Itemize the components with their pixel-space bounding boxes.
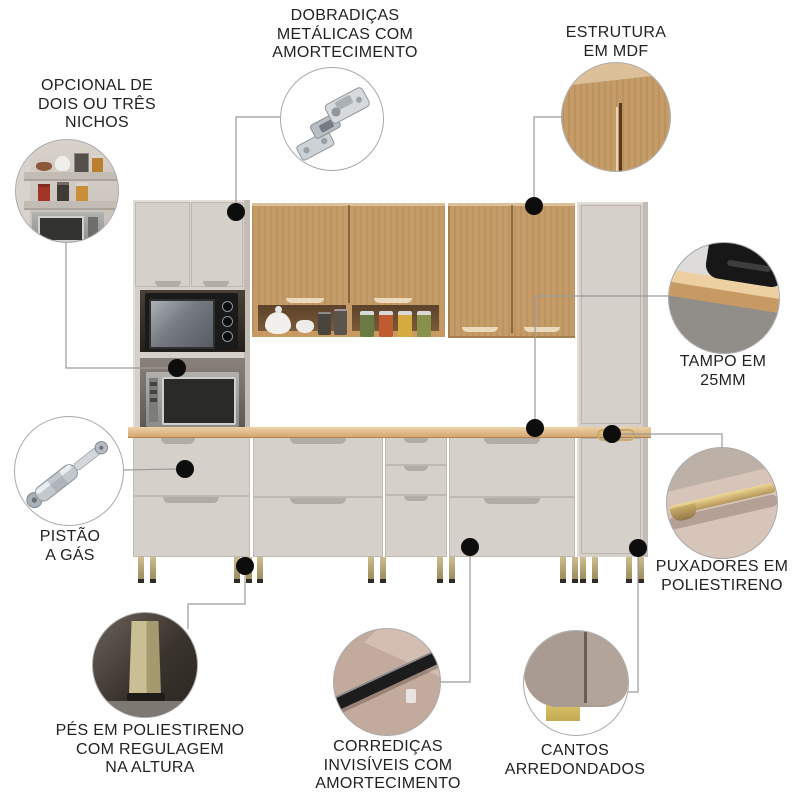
foot-base-cap (127, 693, 165, 701)
puxadores-photo-circle (666, 447, 778, 559)
callout-label-puxadores: PUXADORES EM POLIESTIRENO (622, 558, 800, 595)
callout-label-tampo: TAMPO EM 25MM (643, 353, 800, 390)
gas-piston-icon (15, 417, 123, 525)
cantos-photo-circle (523, 630, 629, 736)
pistao-photo-circle (14, 416, 124, 526)
leader-line-pes (188, 570, 245, 629)
callout-dot-puxadores (603, 425, 621, 443)
corner-panel-light (586, 631, 628, 705)
callout-dot-pistao (176, 460, 194, 478)
kitchen-cabinet-infographic: OPCIONAL DE DOIS OU TRÊS NICHOS DOBRADIÇ… (0, 0, 800, 800)
callout-label-dobradicas: DOBRADIÇAS METÁLICAS COM AMORTECIMENTO (245, 7, 445, 63)
slide-mount-tab (406, 689, 416, 703)
niche-shelf-board (24, 172, 118, 181)
mdf-door-seam-highlight (616, 107, 618, 171)
callout-label-estrutura: ESTRUTURA EM MDF (516, 24, 716, 61)
corner-door-seam (584, 631, 587, 703)
callout-dot-cantos (629, 539, 647, 557)
metal-hinge-icon (281, 68, 383, 170)
callout-label-nichos: OPCIONAL DE DOIS OU TRÊS NICHOS (7, 77, 187, 133)
leader-line-pistao (123, 469, 176, 470)
callout-dot-tampo (526, 419, 544, 437)
niche-side-panel (16, 140, 30, 242)
leader-line-estrutura (534, 117, 562, 206)
leader-line-dobradicas (236, 117, 281, 212)
niche-microwave-window (38, 216, 84, 242)
leader-line-nichos (66, 241, 168, 368)
niche-microwave-buttons (88, 217, 98, 237)
leader-line-puxadores (613, 434, 722, 448)
callout-label-corredicas: CORREDIÇAS INVISÍVEIS COM AMORTECIMENTO (288, 738, 488, 794)
leader-line-corredicas (438, 551, 470, 682)
callout-label-pes: PÉS EM POLIESTIRENO COM REGULAGEM NA ALT… (30, 722, 270, 778)
callout-dot-corredicas (461, 538, 479, 556)
dobradicas-photo-circle (280, 67, 384, 171)
callout-dot-estrutura (525, 197, 543, 215)
polystyrene-foot-post (129, 621, 161, 695)
callout-dot-dobradicas (227, 203, 245, 221)
mdf-door-seam (619, 103, 622, 171)
niche-item-bowl (36, 162, 52, 171)
callout-dot-pes (236, 557, 254, 575)
nichos-photo-circle (15, 139, 119, 243)
niche-microwave (32, 212, 104, 242)
estrutura-photo-circle (561, 62, 671, 172)
callout-dot-nichos (168, 359, 186, 377)
niche-item-frame (74, 153, 89, 173)
corredicas-photo-circle (333, 628, 441, 736)
pes-photo-circle (92, 612, 198, 718)
foot-floor (93, 701, 197, 717)
callout-label-cantos: CANTOS ARREDONDADOS (465, 742, 685, 779)
niche-item-pot (55, 156, 70, 171)
callout-label-pistao: PISTÃO A GÁS (0, 528, 140, 565)
concealed-slide-rail (333, 647, 441, 713)
tampo-photo-circle (668, 242, 780, 354)
niche-shelf-board (24, 201, 118, 210)
